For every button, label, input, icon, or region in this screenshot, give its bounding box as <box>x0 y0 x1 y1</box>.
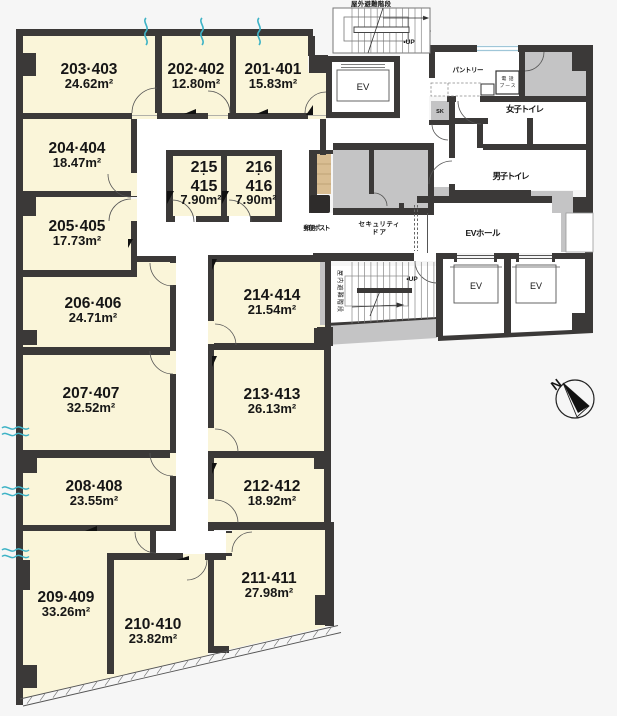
svg-text:7.90m²: 7.90m² <box>180 192 222 207</box>
svg-text:セキュリティ: セキュリティ <box>359 220 400 228</box>
svg-text:32.52m²: 32.52m² <box>67 400 116 415</box>
svg-text:24.62m²: 24.62m² <box>65 76 114 91</box>
svg-text:17.73m²: 17.73m² <box>53 233 102 248</box>
svg-text:郵便ポスト: 郵便ポスト <box>304 223 331 232</box>
svg-text:24.71m²: 24.71m² <box>69 310 118 325</box>
svg-text:屋内避難階段: 屋内避難階段 <box>336 270 344 312</box>
svg-text:パントリー: パントリー <box>453 65 484 74</box>
svg-text:•UP: •UP <box>403 39 415 46</box>
svg-text:屋外避難階段: 屋外避難階段 <box>351 0 392 8</box>
svg-text:女子トイレ: 女子トイレ <box>506 104 544 114</box>
svg-text:男子トイレ: 男子トイレ <box>493 171 530 181</box>
svg-text:•UP: •UP <box>406 276 418 283</box>
svg-text:23.55m²: 23.55m² <box>70 493 119 508</box>
svg-text:ドア: ドア <box>372 228 387 236</box>
svg-text:ブース: ブース <box>500 82 516 89</box>
svg-text:EVホール: EVホール <box>466 228 501 238</box>
svg-text:18.92m²: 18.92m² <box>248 493 297 508</box>
svg-text:27.98m²: 27.98m² <box>245 585 294 600</box>
svg-text:18.47m²: 18.47m² <box>53 155 102 170</box>
svg-text:15.83m²: 15.83m² <box>249 76 298 91</box>
svg-text:33.26m²: 33.26m² <box>42 604 91 619</box>
svg-text:EV: EV <box>470 281 482 291</box>
svg-text:12.80m²: 12.80m² <box>172 76 221 91</box>
svg-text:26.13m²: 26.13m² <box>248 401 297 416</box>
svg-text:EV: EV <box>530 281 542 291</box>
svg-text:23.82m²: 23.82m² <box>129 631 178 646</box>
svg-text:21.54m²: 21.54m² <box>248 302 297 317</box>
svg-text:EV: EV <box>357 82 370 93</box>
svg-text:7.90m²: 7.90m² <box>235 192 277 207</box>
svg-text:SK: SK <box>436 109 444 115</box>
